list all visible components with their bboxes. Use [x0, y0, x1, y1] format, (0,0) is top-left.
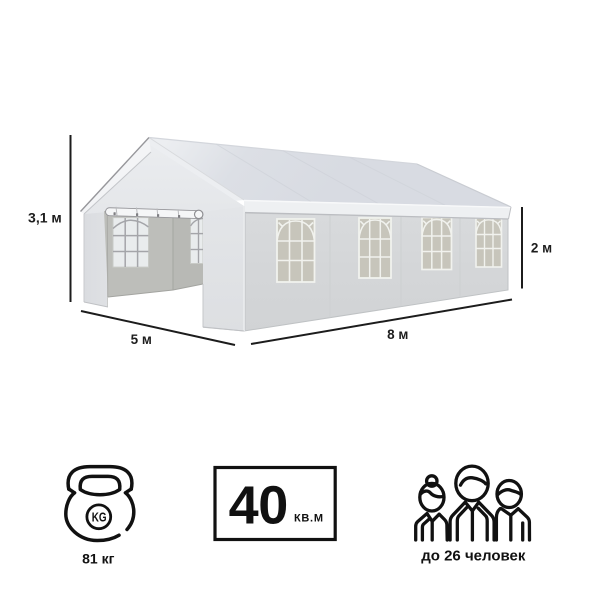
svg-text:KG: KG: [92, 511, 107, 525]
svg-text:2 м: 2 м: [531, 241, 552, 256]
svg-text:40: 40: [229, 476, 288, 536]
svg-text:до 26 человек: до 26 человек: [421, 547, 526, 564]
svg-text:5 м: 5 м: [131, 332, 152, 347]
svg-text:81 кг: 81 кг: [82, 551, 114, 567]
svg-text:3,1 м: 3,1 м: [28, 209, 62, 225]
svg-text:КВ.М: КВ.М: [294, 512, 324, 524]
svg-text:8 м: 8 м: [387, 327, 408, 342]
